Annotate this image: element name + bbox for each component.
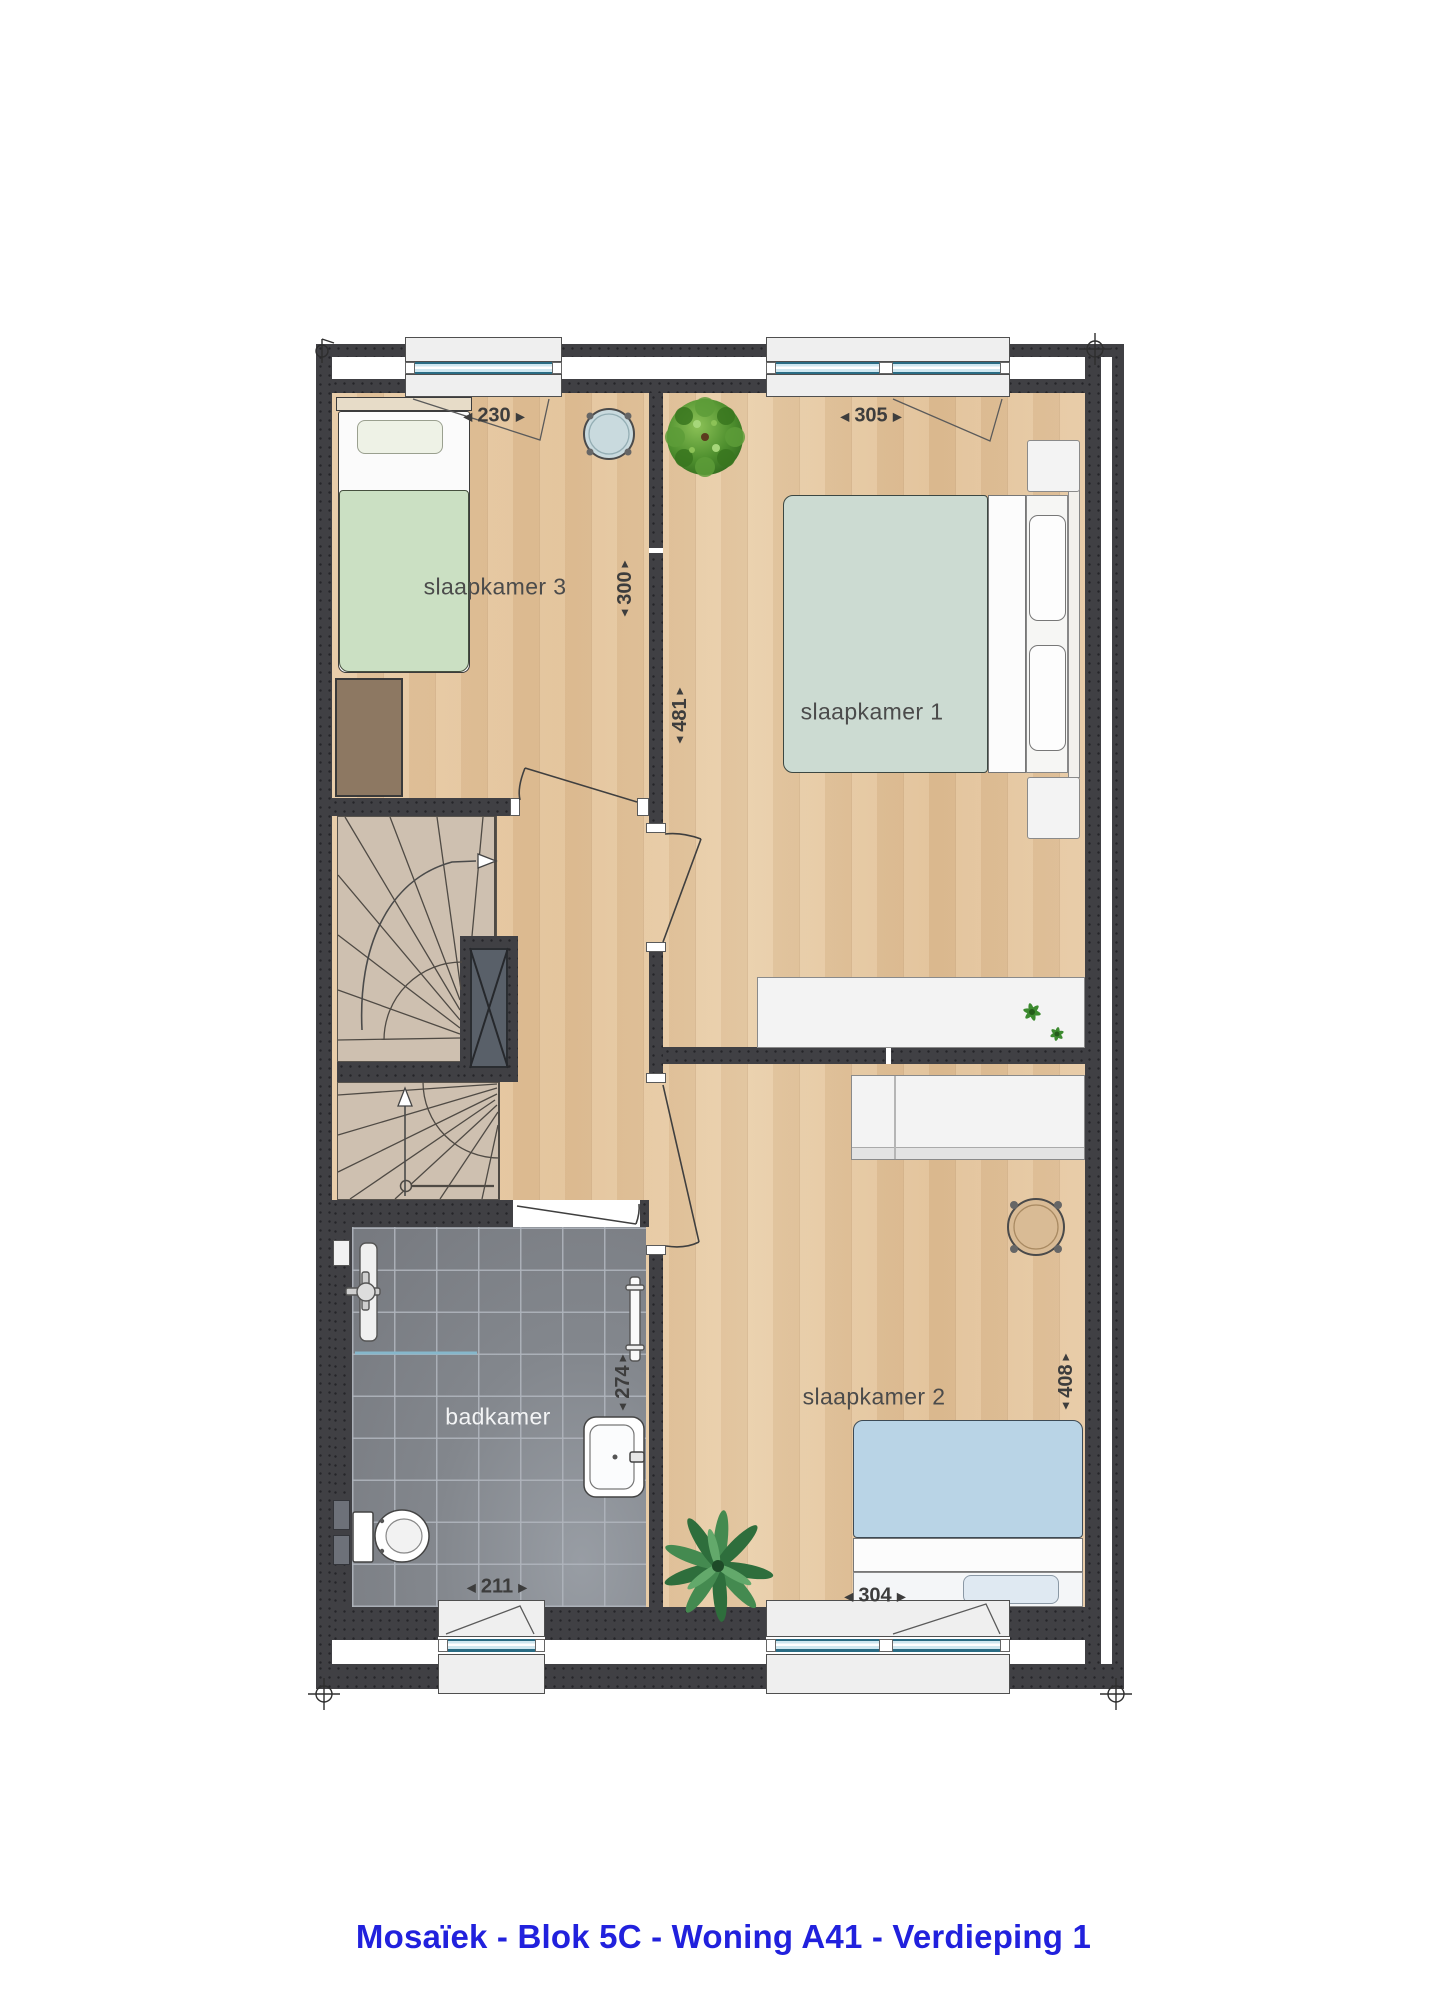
bed-bedroom2-sheet bbox=[853, 1538, 1083, 1572]
door-jamb bbox=[646, 823, 666, 833]
window-bedroom1 bbox=[766, 337, 1010, 397]
bed-bedroom3-pillow bbox=[357, 420, 443, 454]
door-jamb bbox=[646, 1245, 666, 1255]
dim-bathroom-depth: ▲ 274 ▼ bbox=[613, 1351, 633, 1412]
closet-bedroom3 bbox=[335, 678, 403, 797]
door-jamb bbox=[646, 942, 666, 952]
arrow-down-icon: ▼ bbox=[617, 1401, 629, 1413]
bathroom-niche bbox=[333, 1240, 350, 1266]
arrow-right-icon: ▶ bbox=[893, 410, 902, 422]
door-jamb bbox=[637, 798, 649, 816]
arrow-up-icon: ▲ bbox=[1060, 1350, 1072, 1362]
door-jamb bbox=[646, 1073, 666, 1083]
dim-bedroom2-width: ◀ 304 ▶ bbox=[844, 1585, 906, 1608]
bed-bedroom1-sheet bbox=[988, 495, 1026, 773]
bed-bedroom2-duvet bbox=[853, 1420, 1083, 1538]
plan-title: Mosaïek - Blok 5C - Woning A41 - Verdiep… bbox=[356, 1918, 1091, 1956]
wall-party-right-inner bbox=[1085, 344, 1101, 1689]
wall-bathroom-north bbox=[640, 1200, 649, 1227]
dim-bedroom1-depth: ▲ 481 ▼ bbox=[670, 684, 690, 745]
arrow-up-icon: ▲ bbox=[617, 1351, 629, 1363]
window-bedroom3 bbox=[405, 337, 562, 397]
wall-hall-bedroom1 bbox=[649, 393, 663, 823]
wall-joint bbox=[649, 548, 663, 553]
wall-bedroom3-hall bbox=[331, 798, 510, 816]
wall-bathroom-north bbox=[331, 1200, 513, 1227]
door-threshold-bathroom bbox=[513, 1200, 640, 1227]
door-jamb bbox=[510, 798, 520, 816]
bed-bedroom1-pillow bbox=[1029, 515, 1066, 621]
room-label-bedroom3: slaapkamer 3 bbox=[424, 574, 567, 601]
wall-hall-bedroom2 bbox=[649, 1255, 663, 1607]
dim-bedroom1-width: ◀ 305 ▶ bbox=[840, 405, 902, 428]
bed-bedroom1-headboard bbox=[1068, 490, 1080, 778]
arrow-down-icon: ▼ bbox=[674, 734, 686, 746]
arrow-down-icon: ▼ bbox=[1060, 1400, 1072, 1412]
nightstand bbox=[1027, 777, 1080, 839]
sideboard-bedroom1 bbox=[757, 977, 1085, 1048]
nightstand bbox=[1027, 440, 1080, 492]
bed-bedroom3-headboard bbox=[336, 397, 472, 411]
room-label-bedroom1: slaapkamer 1 bbox=[801, 699, 944, 726]
arrow-left-icon: ◀ bbox=[844, 1590, 853, 1602]
bed-bedroom1-duvet bbox=[783, 495, 988, 773]
window-bedroom2 bbox=[766, 1600, 1010, 1694]
wardrobe-divider bbox=[894, 1076, 896, 1159]
bathroom-niche bbox=[333, 1535, 350, 1565]
wardrobe-shelf-edge bbox=[852, 1147, 1084, 1159]
wall-exterior-left bbox=[316, 344, 332, 1689]
arrow-left-icon: ◀ bbox=[840, 410, 849, 422]
wall-joint bbox=[886, 1047, 891, 1064]
floorplan-canvas: slaapkamer 3 slaapkamer 1 slaapkamer 2 b… bbox=[0, 0, 1447, 2008]
wall-bedroom1-bedroom2 bbox=[663, 1047, 1085, 1064]
room-label-bathroom: badkamer bbox=[445, 1404, 550, 1431]
arrow-up-icon: ▲ bbox=[619, 557, 631, 569]
wardrobe-bedroom2 bbox=[851, 1075, 1085, 1160]
arrow-right-icon: ▶ bbox=[897, 1590, 906, 1602]
arrow-right-icon: ▶ bbox=[518, 1581, 527, 1593]
window-bathroom bbox=[438, 1600, 545, 1694]
room-label-bedroom2: slaapkamer 2 bbox=[803, 1384, 946, 1411]
dim-bathroom-width: ◀ 211 ▶ bbox=[467, 1576, 528, 1599]
duct-shaft bbox=[470, 948, 508, 1068]
dim-bedroom3-depth: ▲ 300 ▼ bbox=[615, 557, 635, 618]
wall-hall-bedroom1 bbox=[649, 952, 663, 1073]
bed-bedroom1-pillow bbox=[1029, 645, 1066, 751]
wall-party-right-outer bbox=[1112, 344, 1124, 1689]
stairs-lower-flight bbox=[337, 1082, 500, 1200]
dim-bedroom3-width: ◀ 230 ▶ bbox=[463, 405, 525, 428]
arrow-up-icon: ▲ bbox=[674, 684, 686, 696]
arrow-left-icon: ◀ bbox=[467, 1581, 476, 1593]
arrow-left-icon: ◀ bbox=[463, 410, 472, 422]
bathroom-niche bbox=[333, 1500, 350, 1530]
dim-bedroom2-depth: ▲ 408 ▼ bbox=[1056, 1350, 1076, 1411]
arrow-right-icon: ▶ bbox=[516, 410, 525, 422]
arrow-down-icon: ▼ bbox=[619, 607, 631, 619]
